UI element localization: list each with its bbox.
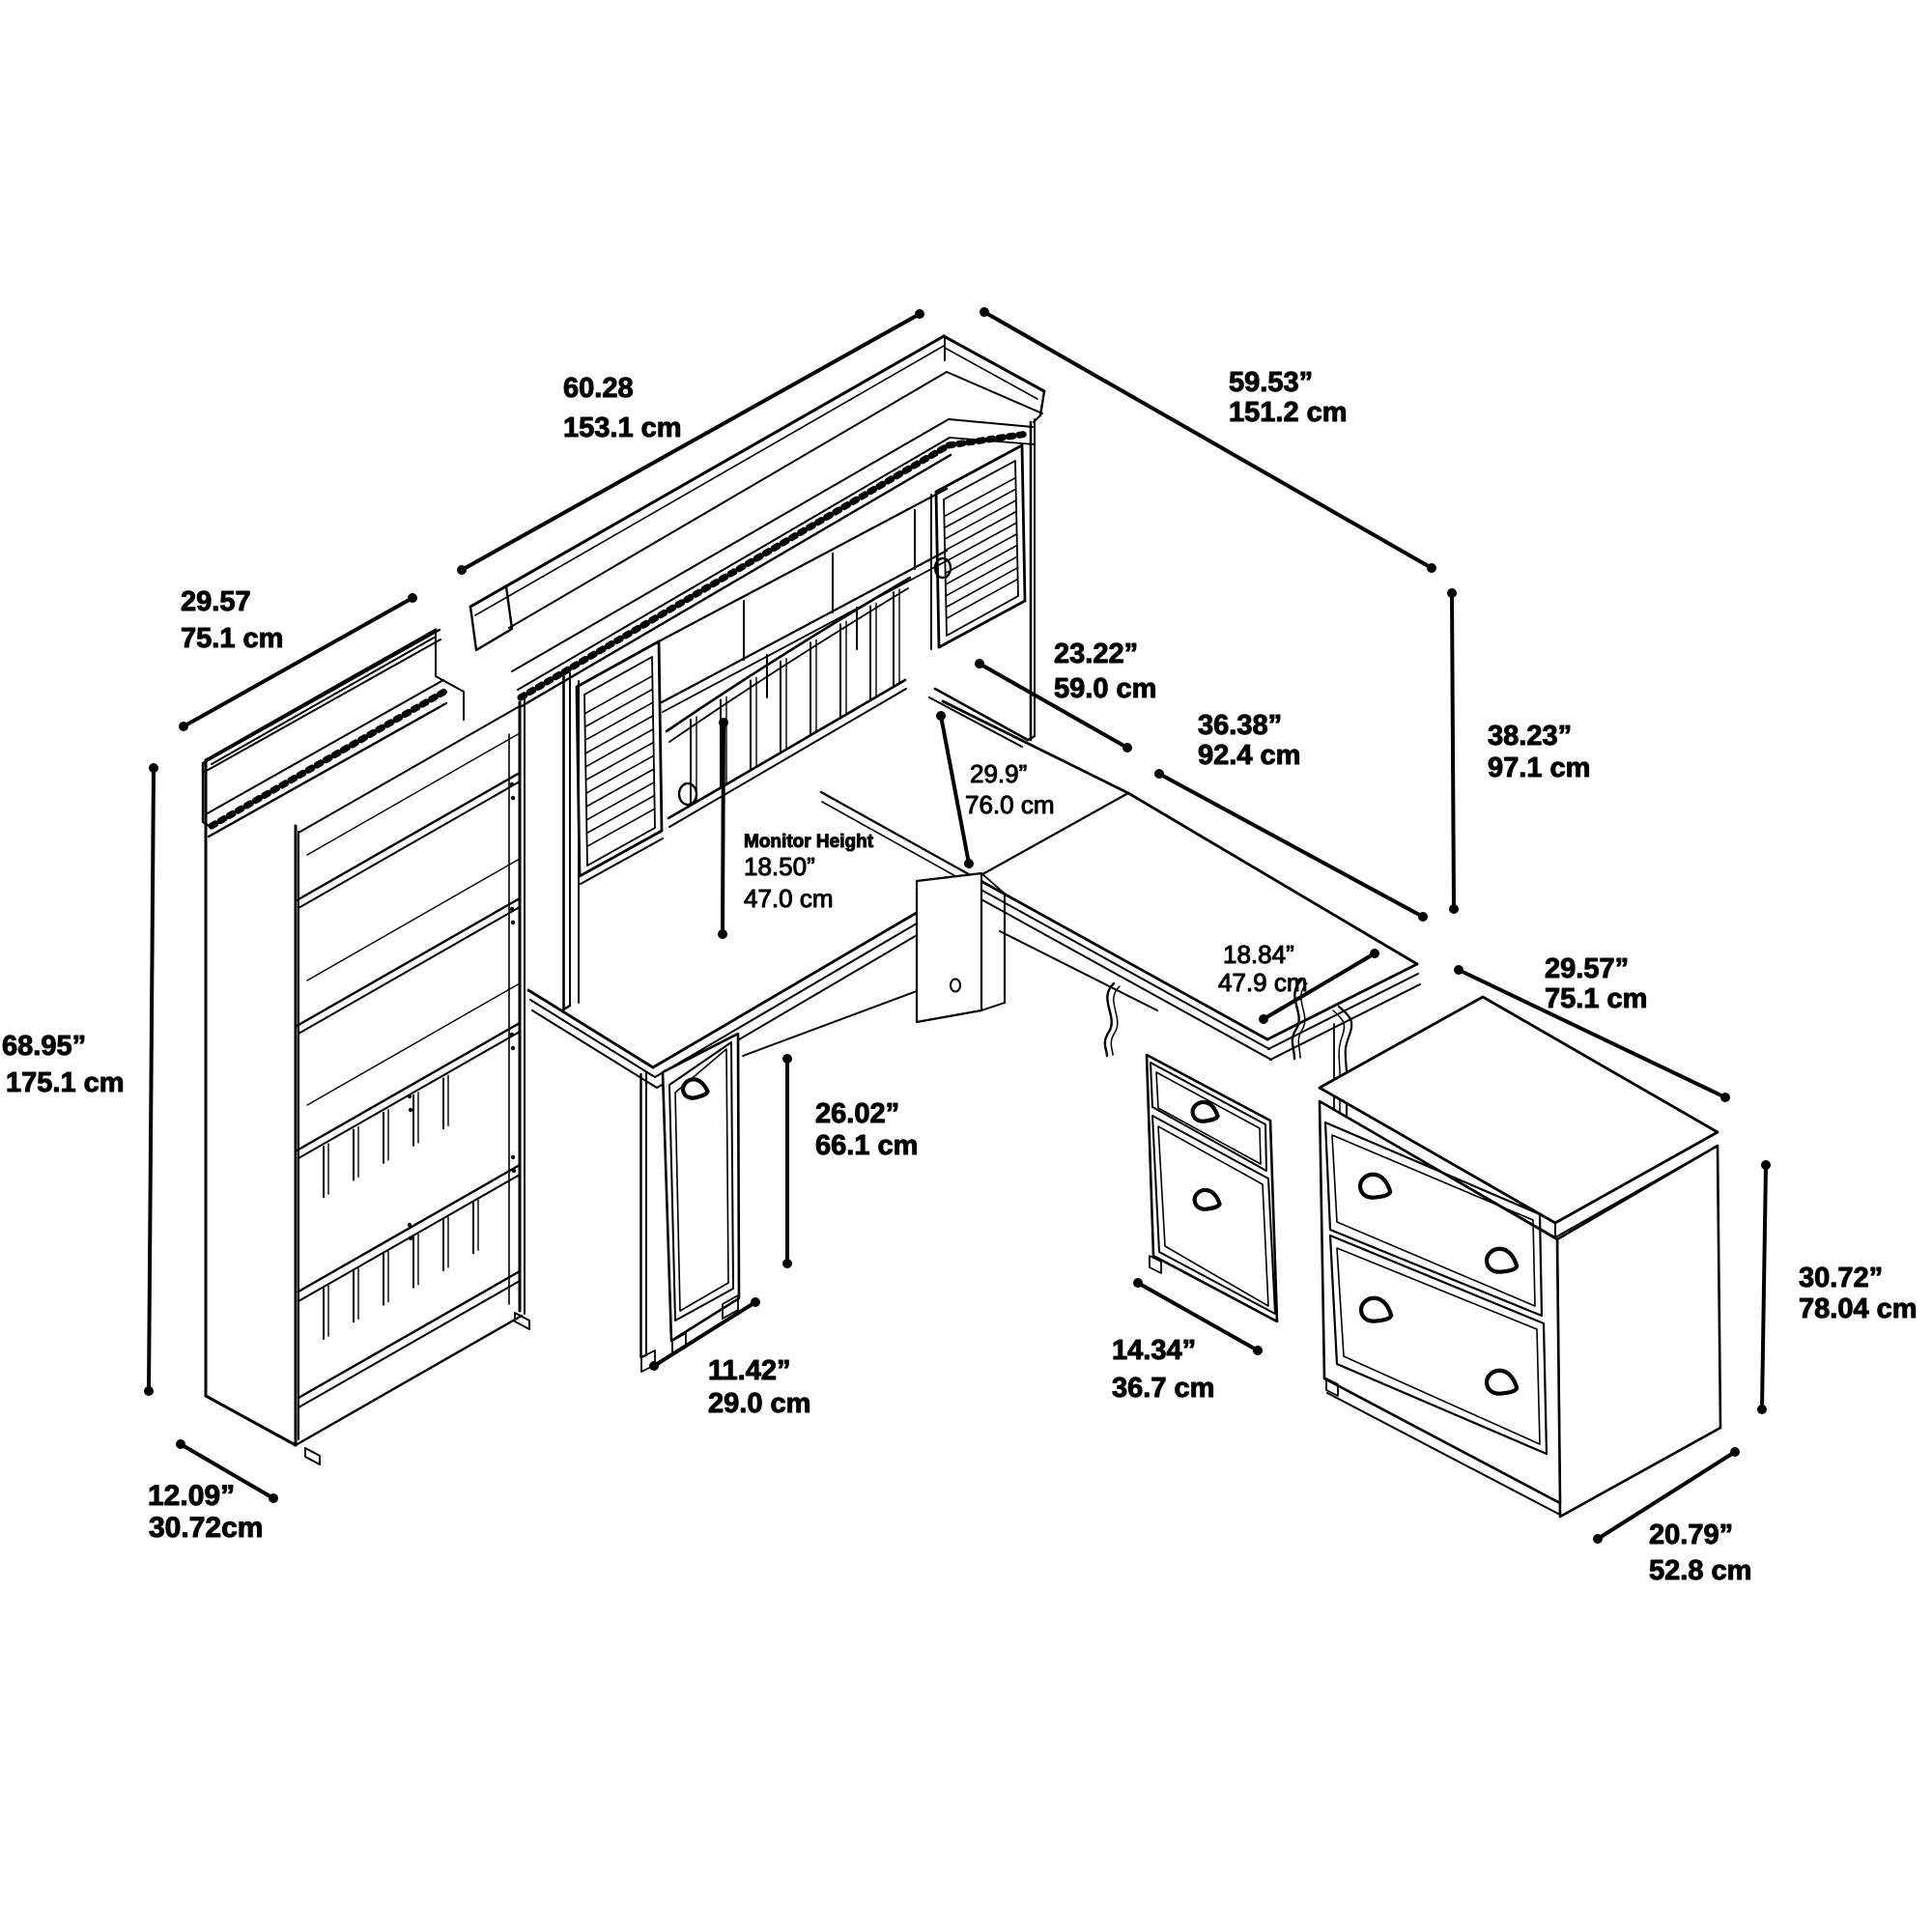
svg-text:47.9 cm: 47.9 cm [1218,968,1308,997]
svg-text:59.0 cm: 59.0 cm [1054,673,1156,704]
svg-text:68.95”: 68.95” [2,1031,86,1062]
svg-text:18.84”: 18.84” [1223,940,1294,969]
svg-text:29.57: 29.57 [181,586,251,617]
svg-text:36.7 cm: 36.7 cm [1112,1373,1214,1404]
svg-text:29.0 cm: 29.0 cm [708,1388,810,1419]
svg-text:Monitor Height: Monitor Height [744,832,874,852]
svg-text:38.23”: 38.23” [1488,721,1572,752]
svg-text:23.22”: 23.22” [1054,639,1138,669]
svg-text:29.9”: 29.9” [970,759,1027,788]
svg-text:66.1 cm: 66.1 cm [815,1130,918,1161]
svg-text:153.1 cm: 153.1 cm [563,412,682,443]
svg-text:151.2 cm: 151.2 cm [1229,397,1348,428]
svg-text:18.50”: 18.50” [744,852,815,881]
svg-text:59.53”: 59.53” [1229,367,1313,398]
svg-text:30.72cm: 30.72cm [149,1512,263,1544]
svg-text:30.72”: 30.72” [1799,1263,1883,1293]
svg-text:14.34”: 14.34” [1112,1335,1196,1366]
svg-text:52.8 cm: 52.8 cm [1649,1555,1751,1586]
svg-text:26.02”: 26.02” [815,1098,899,1129]
svg-text:47.0 cm: 47.0 cm [744,884,834,913]
svg-text:36.38”: 36.38” [1198,710,1282,741]
svg-text:12.09”: 12.09” [148,1480,235,1512]
svg-text:11.42”: 11.42” [708,1355,790,1386]
svg-text:97.1 cm: 97.1 cm [1488,753,1590,783]
svg-text:76.0 cm: 76.0 cm [965,790,1055,819]
svg-text:20.79”: 20.79” [1649,1520,1733,1550]
svg-text:175.1 cm: 175.1 cm [6,1067,125,1098]
svg-text:92.4 cm: 92.4 cm [1198,740,1300,771]
svg-text:60.28: 60.28 [563,373,634,404]
svg-text:29.57”: 29.57” [1545,953,1629,984]
svg-text:75.1 cm: 75.1 cm [1545,983,1647,1014]
svg-text:75.1 cm: 75.1 cm [181,623,283,654]
svg-text:78.04 cm: 78.04 cm [1799,1293,1918,1324]
